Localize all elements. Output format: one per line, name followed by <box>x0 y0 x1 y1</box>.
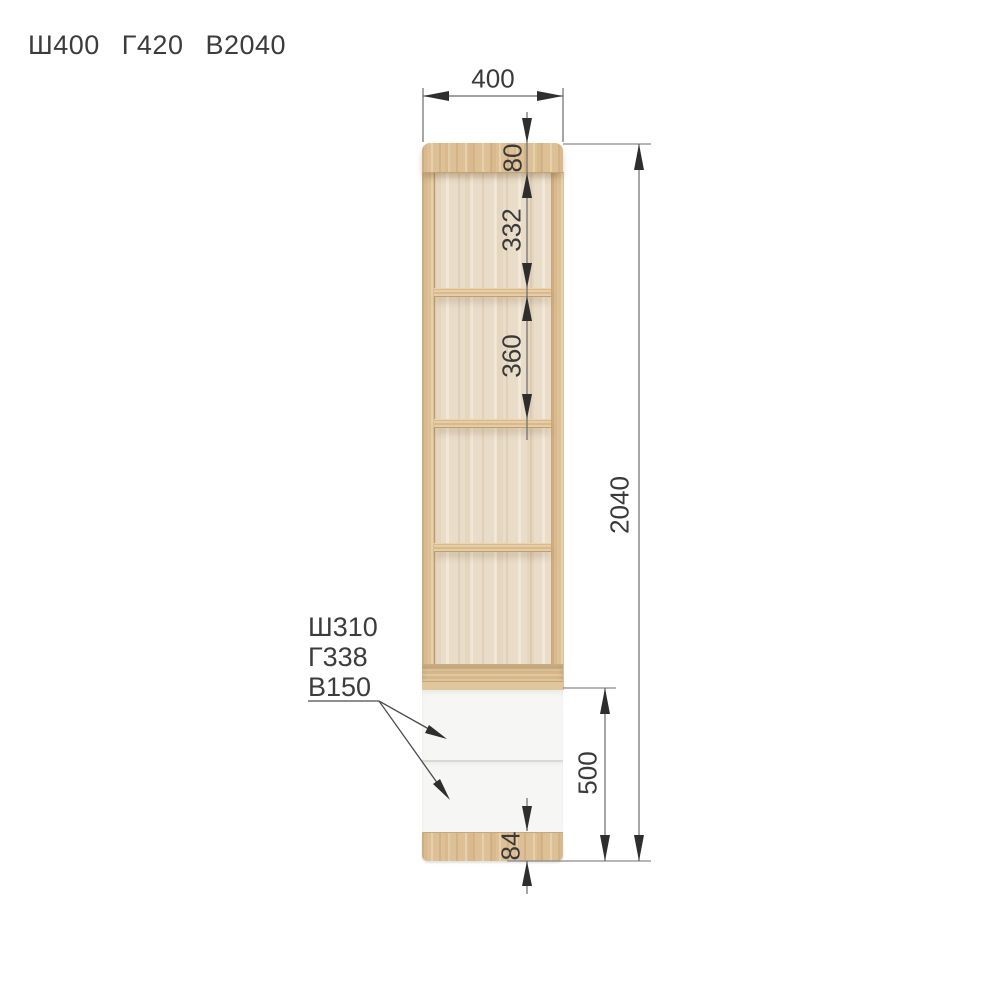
cabinet-top-panel <box>422 143 563 173</box>
furniture-drawing: Ш400Г420В2040 <box>0 0 995 995</box>
shelf-cabinet <box>422 143 563 860</box>
dim-text-top-offset: 80 <box>498 144 529 173</box>
title-depth: Г420 <box>122 30 184 60</box>
drawer-front-1 <box>422 690 563 762</box>
dim-text-overall-width: 400 <box>471 64 514 95</box>
callout-height: В150 <box>308 672 378 702</box>
title-height: В2040 <box>205 30 286 60</box>
shelf-1 <box>434 288 551 297</box>
shelf-3 <box>434 543 551 552</box>
page-title: Ш400Г420В2040 <box>28 30 308 61</box>
cabinet-left-side <box>422 172 435 690</box>
dim-text-overall-height: 2040 <box>605 476 636 534</box>
dim-text-compartment-2: 360 <box>497 334 528 377</box>
shelf-2 <box>434 419 551 428</box>
bottom-panel-top-face <box>422 664 563 681</box>
cabinet-bottom-panel <box>422 664 563 690</box>
cabinet-right-side <box>551 172 564 690</box>
callout-width: Ш310 <box>308 612 378 642</box>
drawer-size-callout: Ш310 Г338 В150 <box>308 612 378 702</box>
dim-text-plinth-height: 84 <box>496 832 527 861</box>
drawer-front-2 <box>422 762 563 832</box>
drawer-unit <box>422 690 563 832</box>
title-width: Ш400 <box>28 30 100 60</box>
dimension-overall-width <box>423 88 563 142</box>
cabinet-back-panel <box>434 172 551 664</box>
dim-text-drawer-unit-height: 500 <box>573 751 604 794</box>
dim-text-compartment-1: 332 <box>497 208 528 251</box>
callout-depth: Г338 <box>308 642 378 672</box>
cabinet-plinth <box>422 832 563 861</box>
